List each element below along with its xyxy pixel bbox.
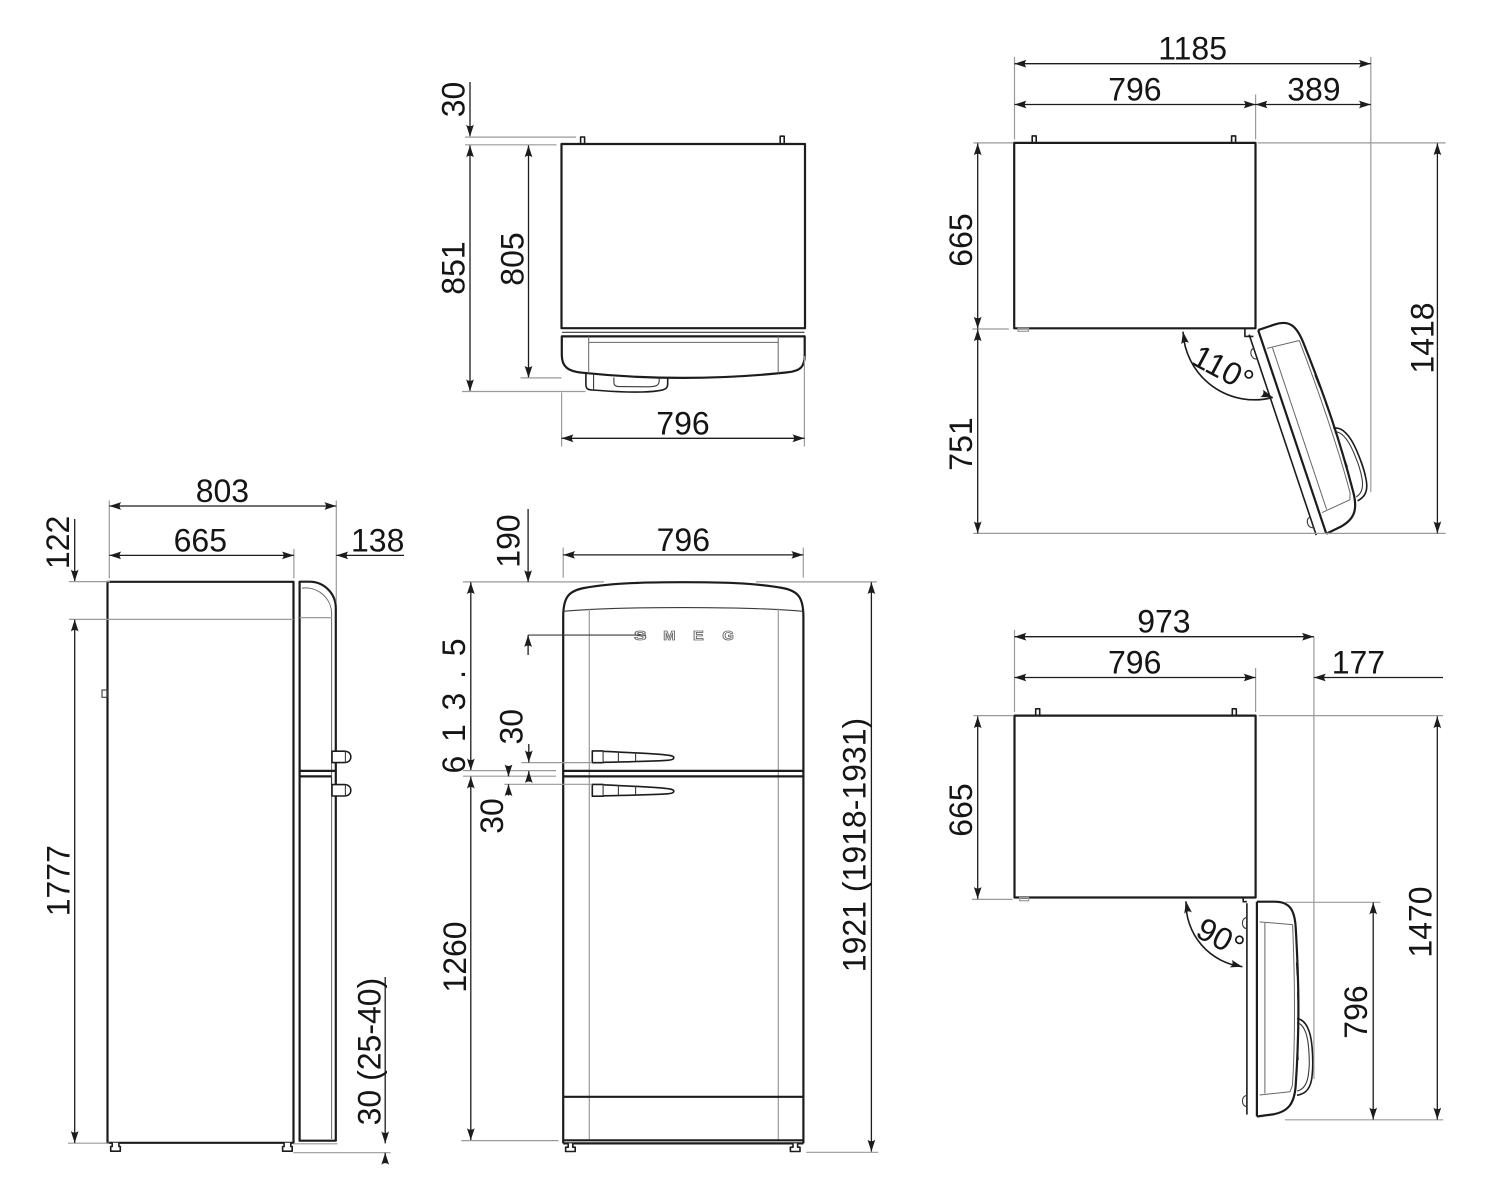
svg-text:1777: 1777 (41, 845, 77, 916)
svg-text:751: 751 (943, 417, 979, 470)
svg-text:805: 805 (495, 232, 531, 285)
svg-text:796: 796 (656, 405, 709, 441)
svg-text:M: M (663, 629, 675, 643)
svg-text:177: 177 (1332, 645, 1385, 681)
svg-text:1185: 1185 (1158, 31, 1227, 67)
svg-text:665: 665 (943, 783, 979, 836)
svg-text:G: G (722, 629, 734, 643)
svg-text:1418: 1418 (1405, 302, 1441, 373)
svg-text:796: 796 (1108, 72, 1161, 108)
svg-text:122: 122 (40, 516, 76, 569)
svg-text:803: 803 (196, 473, 249, 509)
svg-text:389: 389 (1287, 72, 1340, 108)
svg-text:1260: 1260 (437, 921, 473, 992)
svg-text:190: 190 (491, 514, 527, 567)
svg-text:665: 665 (943, 213, 979, 266)
svg-text:1921 (1918-1931): 1921 (1918-1931) (837, 718, 873, 972)
svg-text:851: 851 (436, 241, 472, 294)
svg-text:973: 973 (1137, 604, 1190, 640)
svg-text:30: 30 (436, 82, 472, 118)
svg-text:665: 665 (174, 522, 227, 558)
svg-text:30: 30 (493, 709, 529, 745)
svg-text:1470: 1470 (1402, 886, 1438, 957)
svg-text:30 (25-40): 30 (25-40) (352, 978, 388, 1126)
svg-text:796: 796 (1338, 985, 1374, 1038)
svg-text:S: S (634, 629, 647, 643)
svg-text:796: 796 (1108, 645, 1161, 681)
svg-text:796: 796 (657, 522, 710, 558)
svg-text:E: E (693, 629, 704, 643)
svg-text:138: 138 (351, 522, 404, 558)
svg-text:30: 30 (474, 798, 510, 834)
